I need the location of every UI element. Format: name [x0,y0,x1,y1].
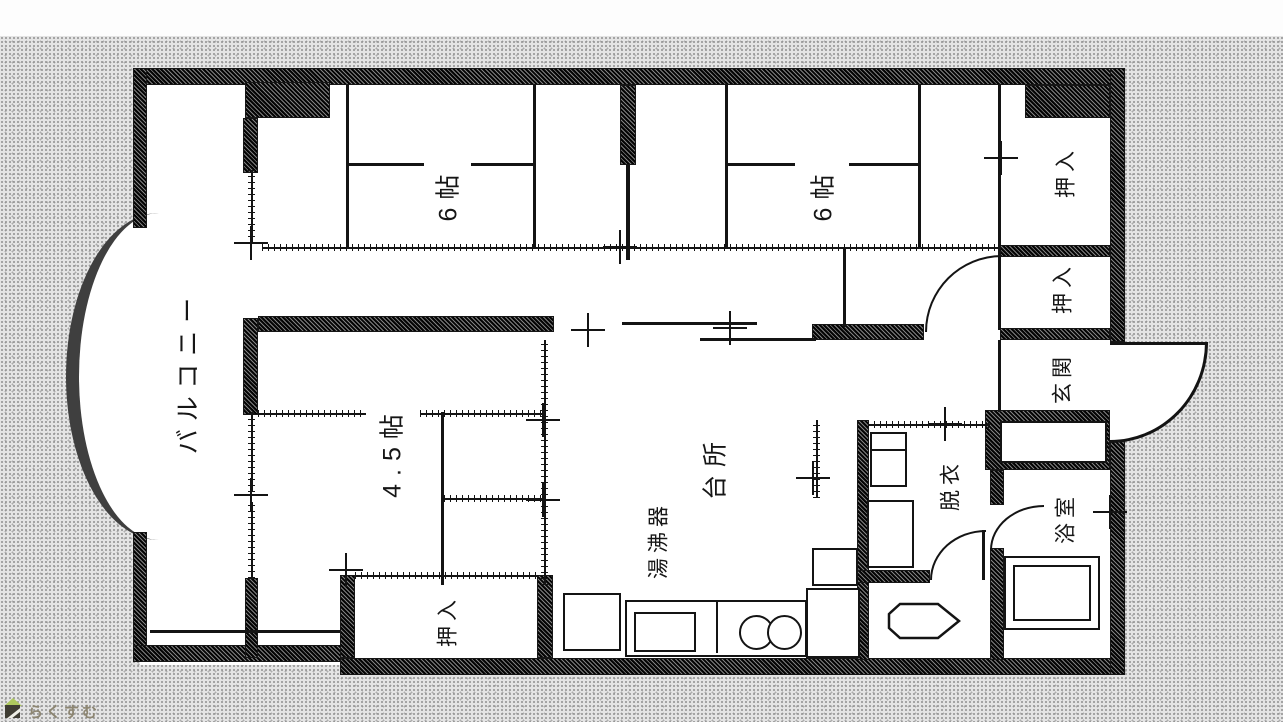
label-closet-bottom: 押入 [438,595,459,647]
shoe-cabinet [1000,421,1107,463]
tatami-line-r2-v1 [725,85,728,247]
label-entrance: 玄関 [1053,352,1074,404]
junction-marker [928,407,962,441]
wall-closet-bottom-left [340,575,355,658]
junction-marker [329,553,363,587]
junction-marker [713,311,747,345]
wall-closet-mid-top [1000,245,1110,257]
junction-marker [526,483,560,517]
label-kitchen: 台所 [704,434,729,500]
entrance-door-arc [1110,342,1208,443]
closet-bottom-door-track [355,572,537,579]
wall-bath-left-lower [990,548,1004,660]
junction-marker [1093,495,1127,529]
wall-bedroom-divider [620,85,636,165]
tatami-line-r1-h-a [348,163,424,166]
label-bedroom2: 6帖 [812,167,837,222]
floor-plan: バルコニー 6帖 6帖 押入 押入 玄関 4.5帖 押入 台所 湯沸器 脱衣 浴… [0,0,1283,721]
junction-marker [234,478,268,512]
label-closet-top-right: 押入 [1056,146,1077,198]
stove-burner-icon [767,615,802,650]
balcony-bottom-line [150,630,340,633]
wall-outer-bottom [340,658,1125,675]
wall-balcony-top-chunk [245,82,330,118]
wall-bath-left-upper [990,470,1004,505]
label-balcony: バルコニー [177,290,202,455]
wall-balcony-seg1 [243,118,258,173]
junction-marker [234,226,268,260]
vanity-unit-b [806,588,860,658]
tatami-line-r3-h1-a [258,410,366,417]
wall-genkan-top [1000,328,1110,340]
junction-marker [526,403,560,437]
wall-balcony-seg2 [243,318,258,415]
tatami-line-r1-v2 [533,85,536,247]
vanity-unit-a [812,548,858,586]
label-dressing: 脱衣 [941,459,962,511]
wall-outer-bottom-left [133,645,343,662]
wall-closet-bottom-right [537,575,553,658]
wc-door-leaf [982,530,985,580]
wall-outer-left-upper [133,68,147,228]
kitchen-counter-divider [716,602,718,653]
wall-balcony-seg3 [245,578,258,658]
wall-under-corridor-left [258,316,554,332]
wall-outer-right-lower [1110,420,1125,675]
laundry-unit [867,500,914,568]
kitchen-room3-door [541,340,548,585]
wall-dressing-wc [857,570,930,583]
genkan-step-line [998,340,1001,412]
label-water-heater: 湯沸器 [649,501,670,579]
scanned-floorplan-page: { "document": {"kind": "apartment floor … [0,0,1283,721]
house-icon [5,705,20,718]
junction-marker [603,230,637,264]
label-bedroom3: 4.5帖 [381,406,406,498]
watermark-text: らくすむ [28,701,100,722]
kitchen-sink-icon [634,612,696,652]
tatami-line-r1-v1 [346,85,349,247]
wall-top-right-chunk [1025,85,1110,118]
wall-outer-left-lower [133,532,147,662]
toilet-icon [886,601,962,641]
wall-corridor-east-end [843,247,846,327]
bathtub-inner [1013,565,1091,621]
wall-kitchen-ne [812,324,924,340]
wall-outer-right-upper [1110,68,1125,342]
tatami-line-r1-h-b [471,163,535,166]
label-bathroom: 浴室 [1056,492,1077,544]
tatami-line-r2-v2 [918,85,921,247]
junction-marker [796,461,830,495]
label-bedroom1: 6帖 [437,167,462,222]
balcony-window-3 [248,502,255,578]
junction-marker [571,313,605,347]
washing-machine-icon [870,449,907,487]
site-watermark: らくすむ [4,698,124,720]
balcony-bulge [66,213,159,540]
tatami-line-r2-h-b [849,163,920,166]
label-closet-mid-right: 押入 [1053,262,1074,314]
tatami-line-r2-h-a [727,163,795,166]
junction-marker [984,141,1018,175]
refrigerator-space [563,593,621,651]
